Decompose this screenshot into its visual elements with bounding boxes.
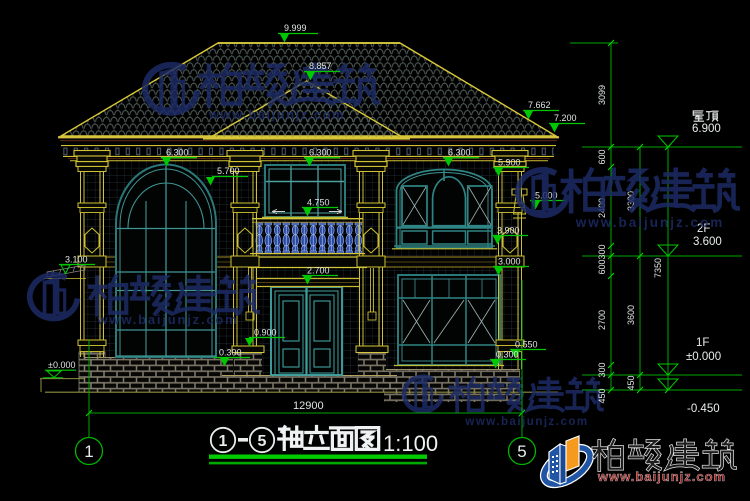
svg-text:4.750: 4.750 xyxy=(307,198,330,208)
svg-text:5.700: 5.700 xyxy=(217,166,240,176)
svg-text:450: 450 xyxy=(626,375,636,390)
svg-text:±0.000: ±0.000 xyxy=(686,351,721,363)
svg-text:1: 1 xyxy=(84,442,93,461)
svg-text:3099: 3099 xyxy=(597,85,607,105)
svg-text:7.200: 7.200 xyxy=(554,113,577,123)
svg-text:12900: 12900 xyxy=(293,400,324,412)
svg-text:0.300: 0.300 xyxy=(219,348,242,358)
svg-text:3.900: 3.900 xyxy=(497,226,520,236)
svg-text:8.857: 8.857 xyxy=(309,61,332,71)
svg-text:3.600: 3.600 xyxy=(693,236,722,248)
svg-text:1:100: 1:100 xyxy=(383,431,438,456)
svg-text:600: 600 xyxy=(597,149,607,164)
svg-text:0.300: 0.300 xyxy=(496,350,519,360)
svg-text:3.100: 3.100 xyxy=(65,255,88,265)
svg-text:600: 600 xyxy=(597,259,607,274)
svg-text:1: 1 xyxy=(219,433,228,450)
svg-text:±0.000: ±0.000 xyxy=(48,360,75,370)
svg-text:2.700: 2.700 xyxy=(307,266,330,276)
svg-text:300: 300 xyxy=(597,244,607,259)
svg-text:1F: 1F xyxy=(696,337,709,349)
svg-text:6.300: 6.300 xyxy=(448,148,471,158)
svg-text:5: 5 xyxy=(258,433,267,450)
svg-text:-0.450: -0.450 xyxy=(687,403,720,415)
svg-text:6.900: 6.900 xyxy=(692,123,721,135)
svg-text:www.baijunjz.com: www.baijunjz.com xyxy=(97,312,239,327)
svg-text:6.300: 6.300 xyxy=(166,148,189,158)
svg-text:7.662: 7.662 xyxy=(528,100,551,110)
svg-text:3600: 3600 xyxy=(626,305,636,325)
svg-text:9.999: 9.999 xyxy=(284,23,307,33)
svg-text:5.900: 5.900 xyxy=(498,158,521,168)
svg-text:0.550: 0.550 xyxy=(515,340,538,350)
svg-text:www.baijunjz.com: www.baijunjz.com xyxy=(464,416,588,428)
svg-text:www.baijunjz.com: www.baijunjz.com xyxy=(575,215,725,230)
svg-text:6.300: 6.300 xyxy=(309,148,332,158)
svg-text:2700: 2700 xyxy=(597,310,607,330)
svg-text:3.000: 3.000 xyxy=(498,257,521,267)
svg-text:www.baijunjz.com: www.baijunjz.com xyxy=(208,107,345,122)
svg-text:7350: 7350 xyxy=(653,258,663,278)
svg-text:300: 300 xyxy=(597,362,607,377)
svg-text:0.900: 0.900 xyxy=(254,328,277,338)
svg-text:450: 450 xyxy=(597,388,607,403)
svg-text:www.baijunjz.com: www.baijunjz.com xyxy=(597,469,726,484)
svg-text:5: 5 xyxy=(517,442,526,461)
